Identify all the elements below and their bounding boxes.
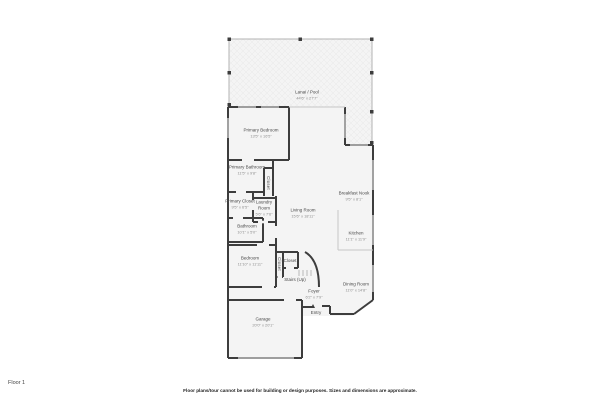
- floorplan-drawing: [0, 0, 600, 400]
- entry-arrow-icon: [311, 304, 315, 308]
- floorplan-page: Lanai / Pool 44'6" x 27'7" Primary Bedro…: [0, 0, 600, 400]
- room-fills: [228, 39, 373, 358]
- floor-selector-label: Floor 1: [8, 380, 25, 386]
- disclaimer-text: Floor plans/tour cannot be used for buil…: [0, 388, 600, 393]
